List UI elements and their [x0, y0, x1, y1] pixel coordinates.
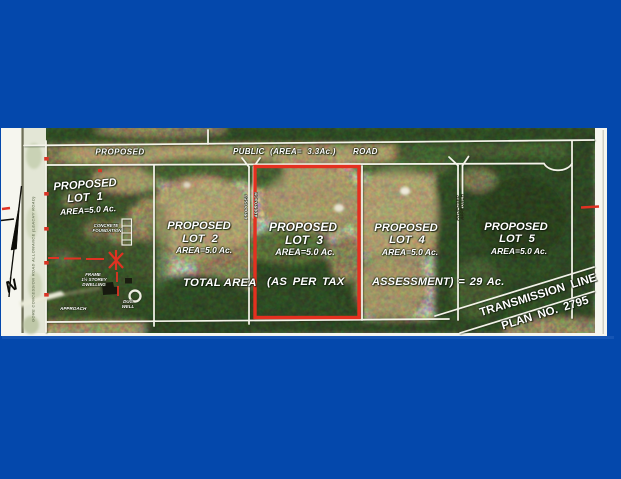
svg-text:APPROACH: APPROACH — [59, 306, 87, 311]
svg-text:WELL: WELL — [122, 304, 135, 309]
svg-text:FOUNDATION: FOUNDATION — [93, 228, 123, 233]
svg-text:APPROACH: APPROACH — [459, 193, 464, 221]
svg-text:DWELLING: DWELLING — [82, 282, 106, 287]
svg-text:APPROACH: APPROACH — [254, 192, 259, 219]
svg-text:GORE CONCESSION ROAD ALLOWANCE: GORE CONCESSION ROAD ALLOWANCE (LEACHY R… — [31, 196, 36, 322]
svg-text:PROPOSED: PROPOSED — [244, 194, 249, 220]
